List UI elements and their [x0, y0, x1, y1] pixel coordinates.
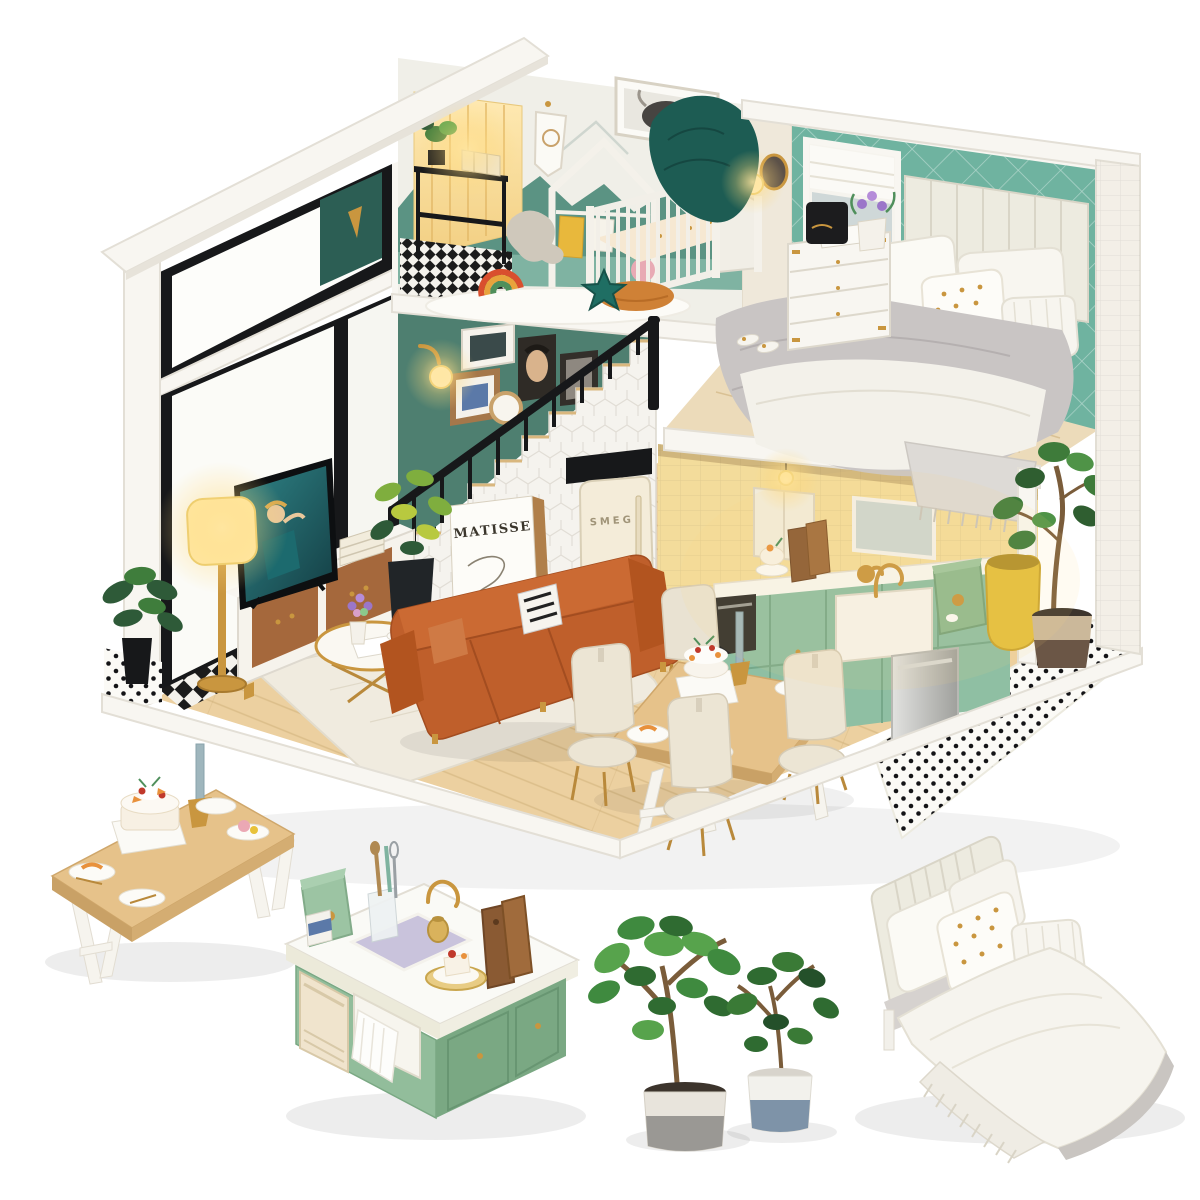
black-speaker	[806, 202, 848, 244]
product-photo: SMEG MATISSE	[0, 0, 1200, 1200]
standalone-plants	[584, 912, 842, 1152]
lamp-glow	[156, 462, 288, 594]
fiddle-fig-small	[724, 951, 843, 1132]
monstera-pot	[122, 638, 152, 684]
plant-pot-blue	[748, 1068, 812, 1132]
island-mug	[306, 910, 332, 946]
mini-plate-back	[196, 798, 236, 814]
pink-pouf	[631, 258, 655, 282]
plant-pot-gray	[644, 1082, 726, 1151]
dollhouse-scene: SMEG MATISSE	[0, 0, 1200, 1200]
closet-glow	[418, 100, 518, 200]
kitchen-ambient-glow	[680, 470, 1080, 690]
mini-cake	[112, 777, 186, 854]
fridge-handle	[636, 496, 641, 558]
stair-sconce-glow	[405, 339, 477, 411]
divider-sconce-glow	[721, 150, 785, 214]
newel-post-top	[648, 316, 659, 410]
standalone-bed	[855, 837, 1185, 1163]
island-cutting-boards	[482, 896, 532, 988]
fiddle-fig-large	[584, 912, 745, 1151]
standalone-dining-table	[45, 744, 295, 984]
